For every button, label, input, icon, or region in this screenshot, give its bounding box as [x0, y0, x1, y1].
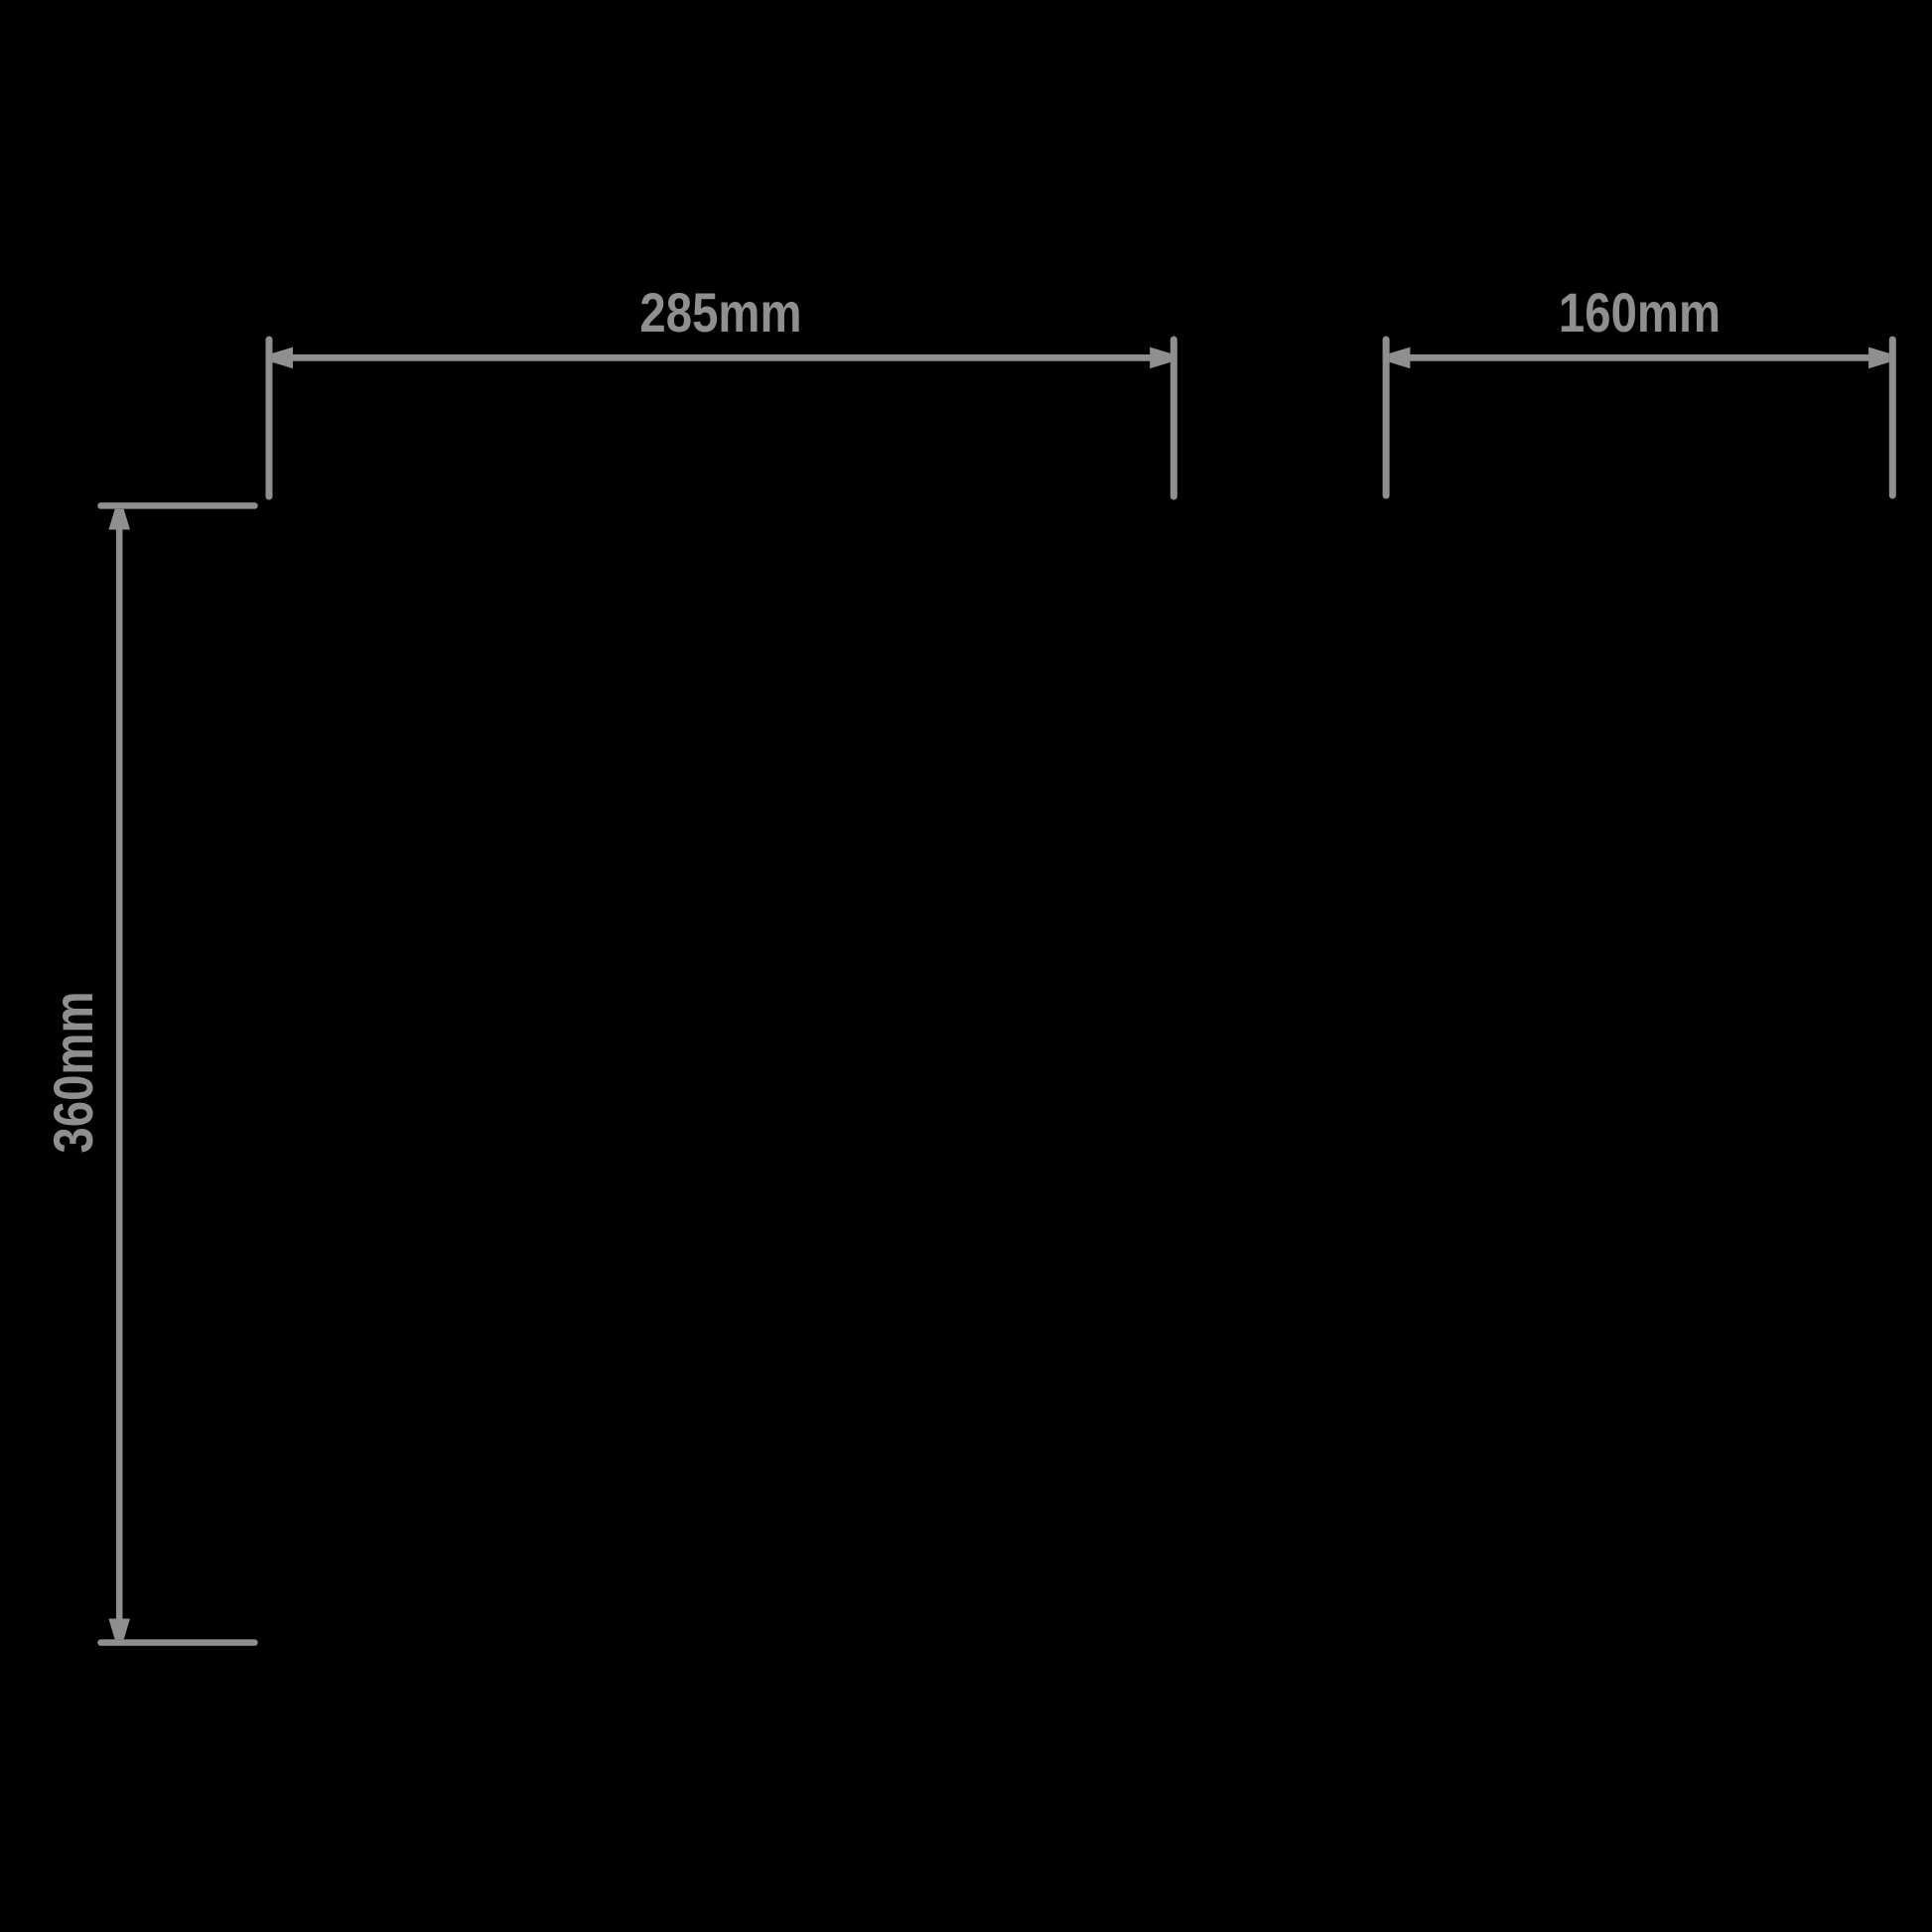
svg-text:285mm: 285mm [639, 282, 801, 344]
svg-text:160mm: 160mm [1559, 282, 1721, 344]
svg-text:360mm: 360mm [42, 991, 103, 1153]
